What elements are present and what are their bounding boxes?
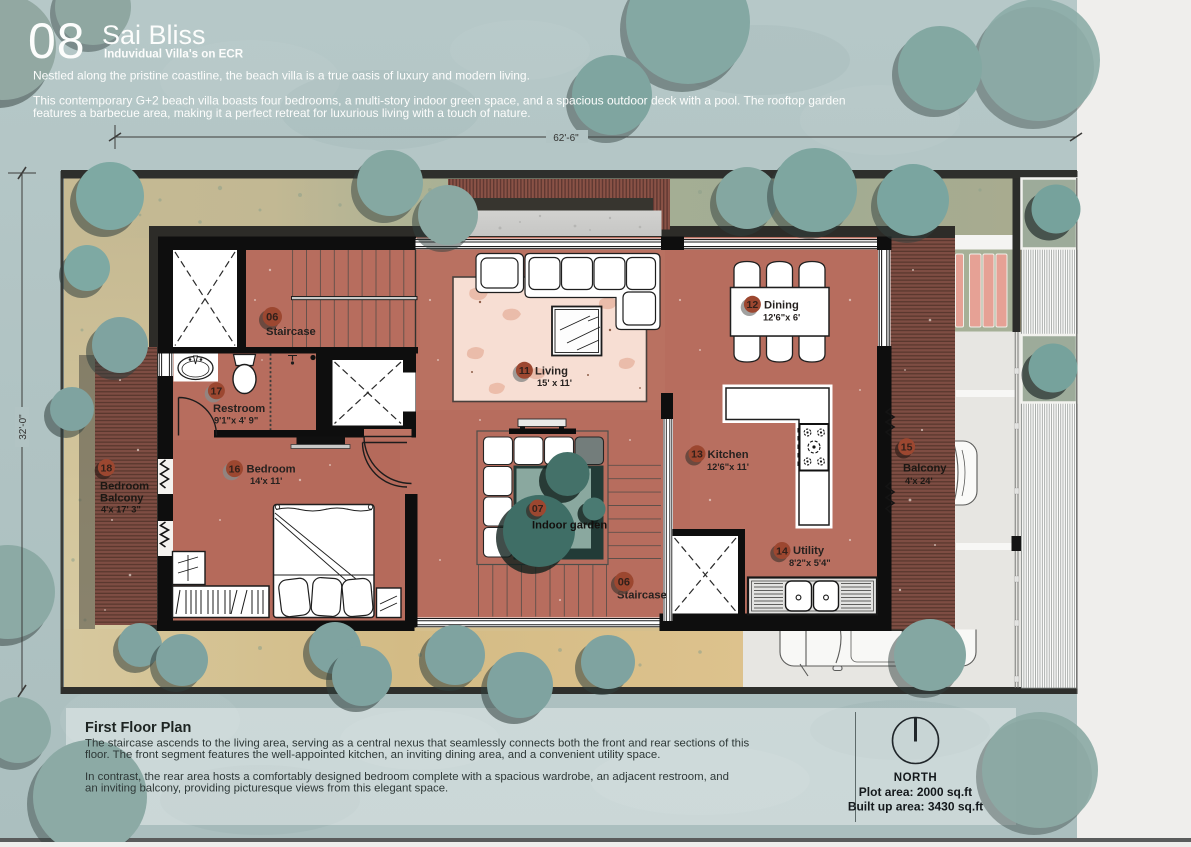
svg-text:Sai Bliss: Sai Bliss: [102, 20, 206, 50]
svg-text:Nestled along the pristine coa: Nestled along the pristine coastline, th…: [33, 69, 530, 83]
svg-text:Kitchen: Kitchen: [708, 449, 749, 461]
svg-text:4'x 17' 3": 4'x 17' 3": [101, 505, 141, 515]
svg-text:12'6"x 11': 12'6"x 11': [707, 462, 749, 472]
svg-text:The staircase ascends to the l: The staircase ascends to the living area…: [85, 738, 749, 750]
svg-text:14'x 11': 14'x 11': [250, 476, 282, 486]
svg-text:62'-6": 62'-6": [553, 133, 579, 144]
svg-text:Balcony: Balcony: [903, 463, 947, 475]
svg-text:32'-0": 32'-0": [18, 414, 29, 440]
svg-text:16: 16: [229, 463, 241, 475]
svg-text:an inviting balcony, providing: an inviting balcony, providing picturesq…: [85, 783, 448, 795]
svg-text:14: 14: [776, 545, 788, 557]
svg-text:17: 17: [211, 386, 223, 398]
svg-text:11: 11: [519, 365, 530, 377]
svg-text:13: 13: [691, 449, 703, 461]
svg-text:07: 07: [532, 503, 544, 515]
svg-text:15: 15: [901, 442, 913, 454]
svg-text:Bedroom: Bedroom: [247, 464, 296, 476]
svg-text:Built up area: 3430 sq.ft: Built up area: 3430 sq.ft: [848, 800, 983, 814]
svg-text:Balcony: Balcony: [100, 493, 144, 505]
svg-text:08: 08: [28, 13, 86, 69]
svg-text:First Floor Plan: First Floor Plan: [85, 720, 191, 736]
svg-text:Living: Living: [535, 366, 568, 378]
svg-text:9'1"x 4' 9": 9'1"x 4' 9": [214, 416, 258, 426]
svg-text:Plot area: 2000 sq.ft: Plot area: 2000 sq.ft: [859, 785, 972, 799]
svg-text:18: 18: [101, 462, 113, 474]
svg-text:12'6"x 6': 12'6"x 6': [763, 313, 800, 323]
svg-text:8'2"x 5'4": 8'2"x 5'4": [789, 558, 831, 568]
svg-text:4'x 24': 4'x 24': [905, 476, 933, 486]
svg-text:Indoor garden: Indoor garden: [532, 520, 607, 532]
svg-text:Dining: Dining: [764, 299, 799, 311]
svg-text:floor. The front segment featu: floor. The front segment features the we…: [85, 749, 660, 761]
svg-text:06: 06: [266, 312, 278, 324]
svg-text:15' x 11': 15' x 11': [537, 378, 572, 388]
svg-text:NORTH: NORTH: [894, 772, 937, 784]
svg-text:06: 06: [618, 577, 630, 589]
svg-text:Bedroom: Bedroom: [100, 481, 149, 493]
svg-text:Utility: Utility: [793, 545, 825, 557]
svg-text:12: 12: [747, 299, 759, 311]
svg-text:In contrast, the rear area hos: In contrast, the rear area hosts a comfo…: [85, 771, 729, 783]
svg-text:Induvidual Villa's on ECR: Induvidual Villa's on ECR: [104, 48, 244, 61]
svg-text:Staircase: Staircase: [266, 326, 316, 338]
svg-text:features a barbecue area, maki: features a barbecue area, making it a pe…: [33, 106, 531, 120]
svg-text:Restroom: Restroom: [213, 403, 265, 415]
